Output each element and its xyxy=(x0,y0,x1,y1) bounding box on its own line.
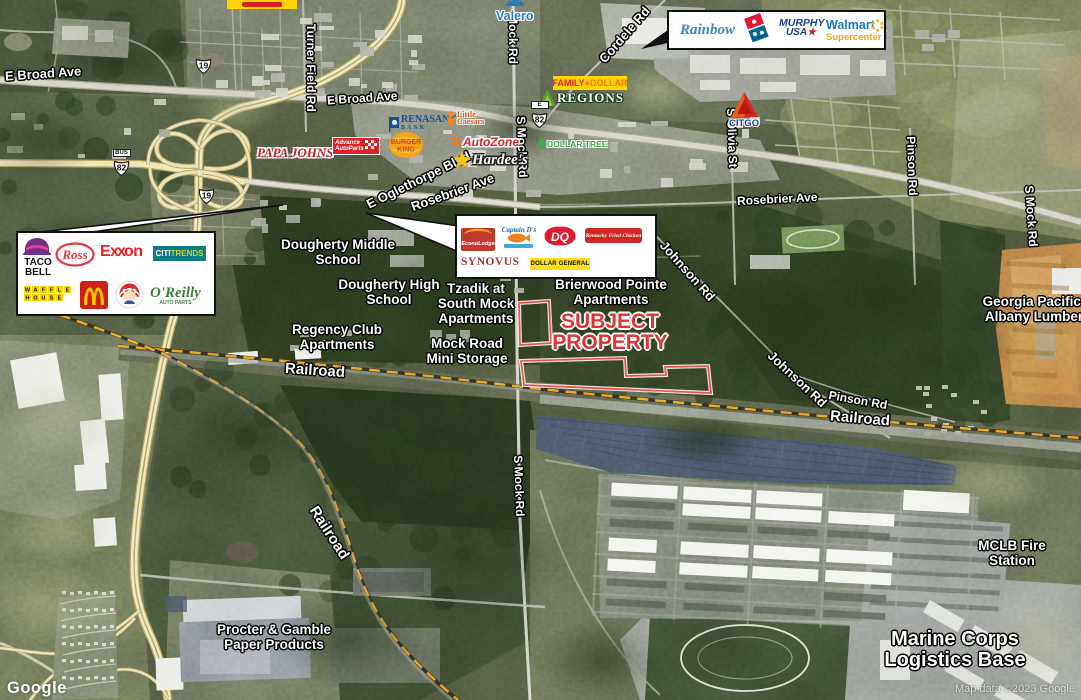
svg-text:E: E xyxy=(58,296,62,302)
svg-text:W: W xyxy=(25,288,31,294)
svg-text:E: E xyxy=(66,288,70,294)
svg-text:A: A xyxy=(34,288,38,294)
svg-text:S: S xyxy=(50,296,54,302)
svg-text:19: 19 xyxy=(199,61,209,71)
svg-text:Ross: Ross xyxy=(61,247,87,262)
svg-text:82: 82 xyxy=(535,114,545,124)
svg-text:Captain D's: Captain D's xyxy=(502,226,536,234)
svg-text:U: U xyxy=(42,296,46,302)
svg-text:H: H xyxy=(26,296,30,302)
svg-text:BURGER: BURGER xyxy=(391,139,421,146)
svg-text:EconoLodge: EconoLodge xyxy=(461,241,494,247)
svg-text:19: 19 xyxy=(202,191,212,201)
svg-text:DQ: DQ xyxy=(551,230,570,244)
svg-text:KING: KING xyxy=(397,147,415,154)
svg-text:82: 82 xyxy=(117,162,127,172)
svg-text:O: O xyxy=(33,296,38,302)
